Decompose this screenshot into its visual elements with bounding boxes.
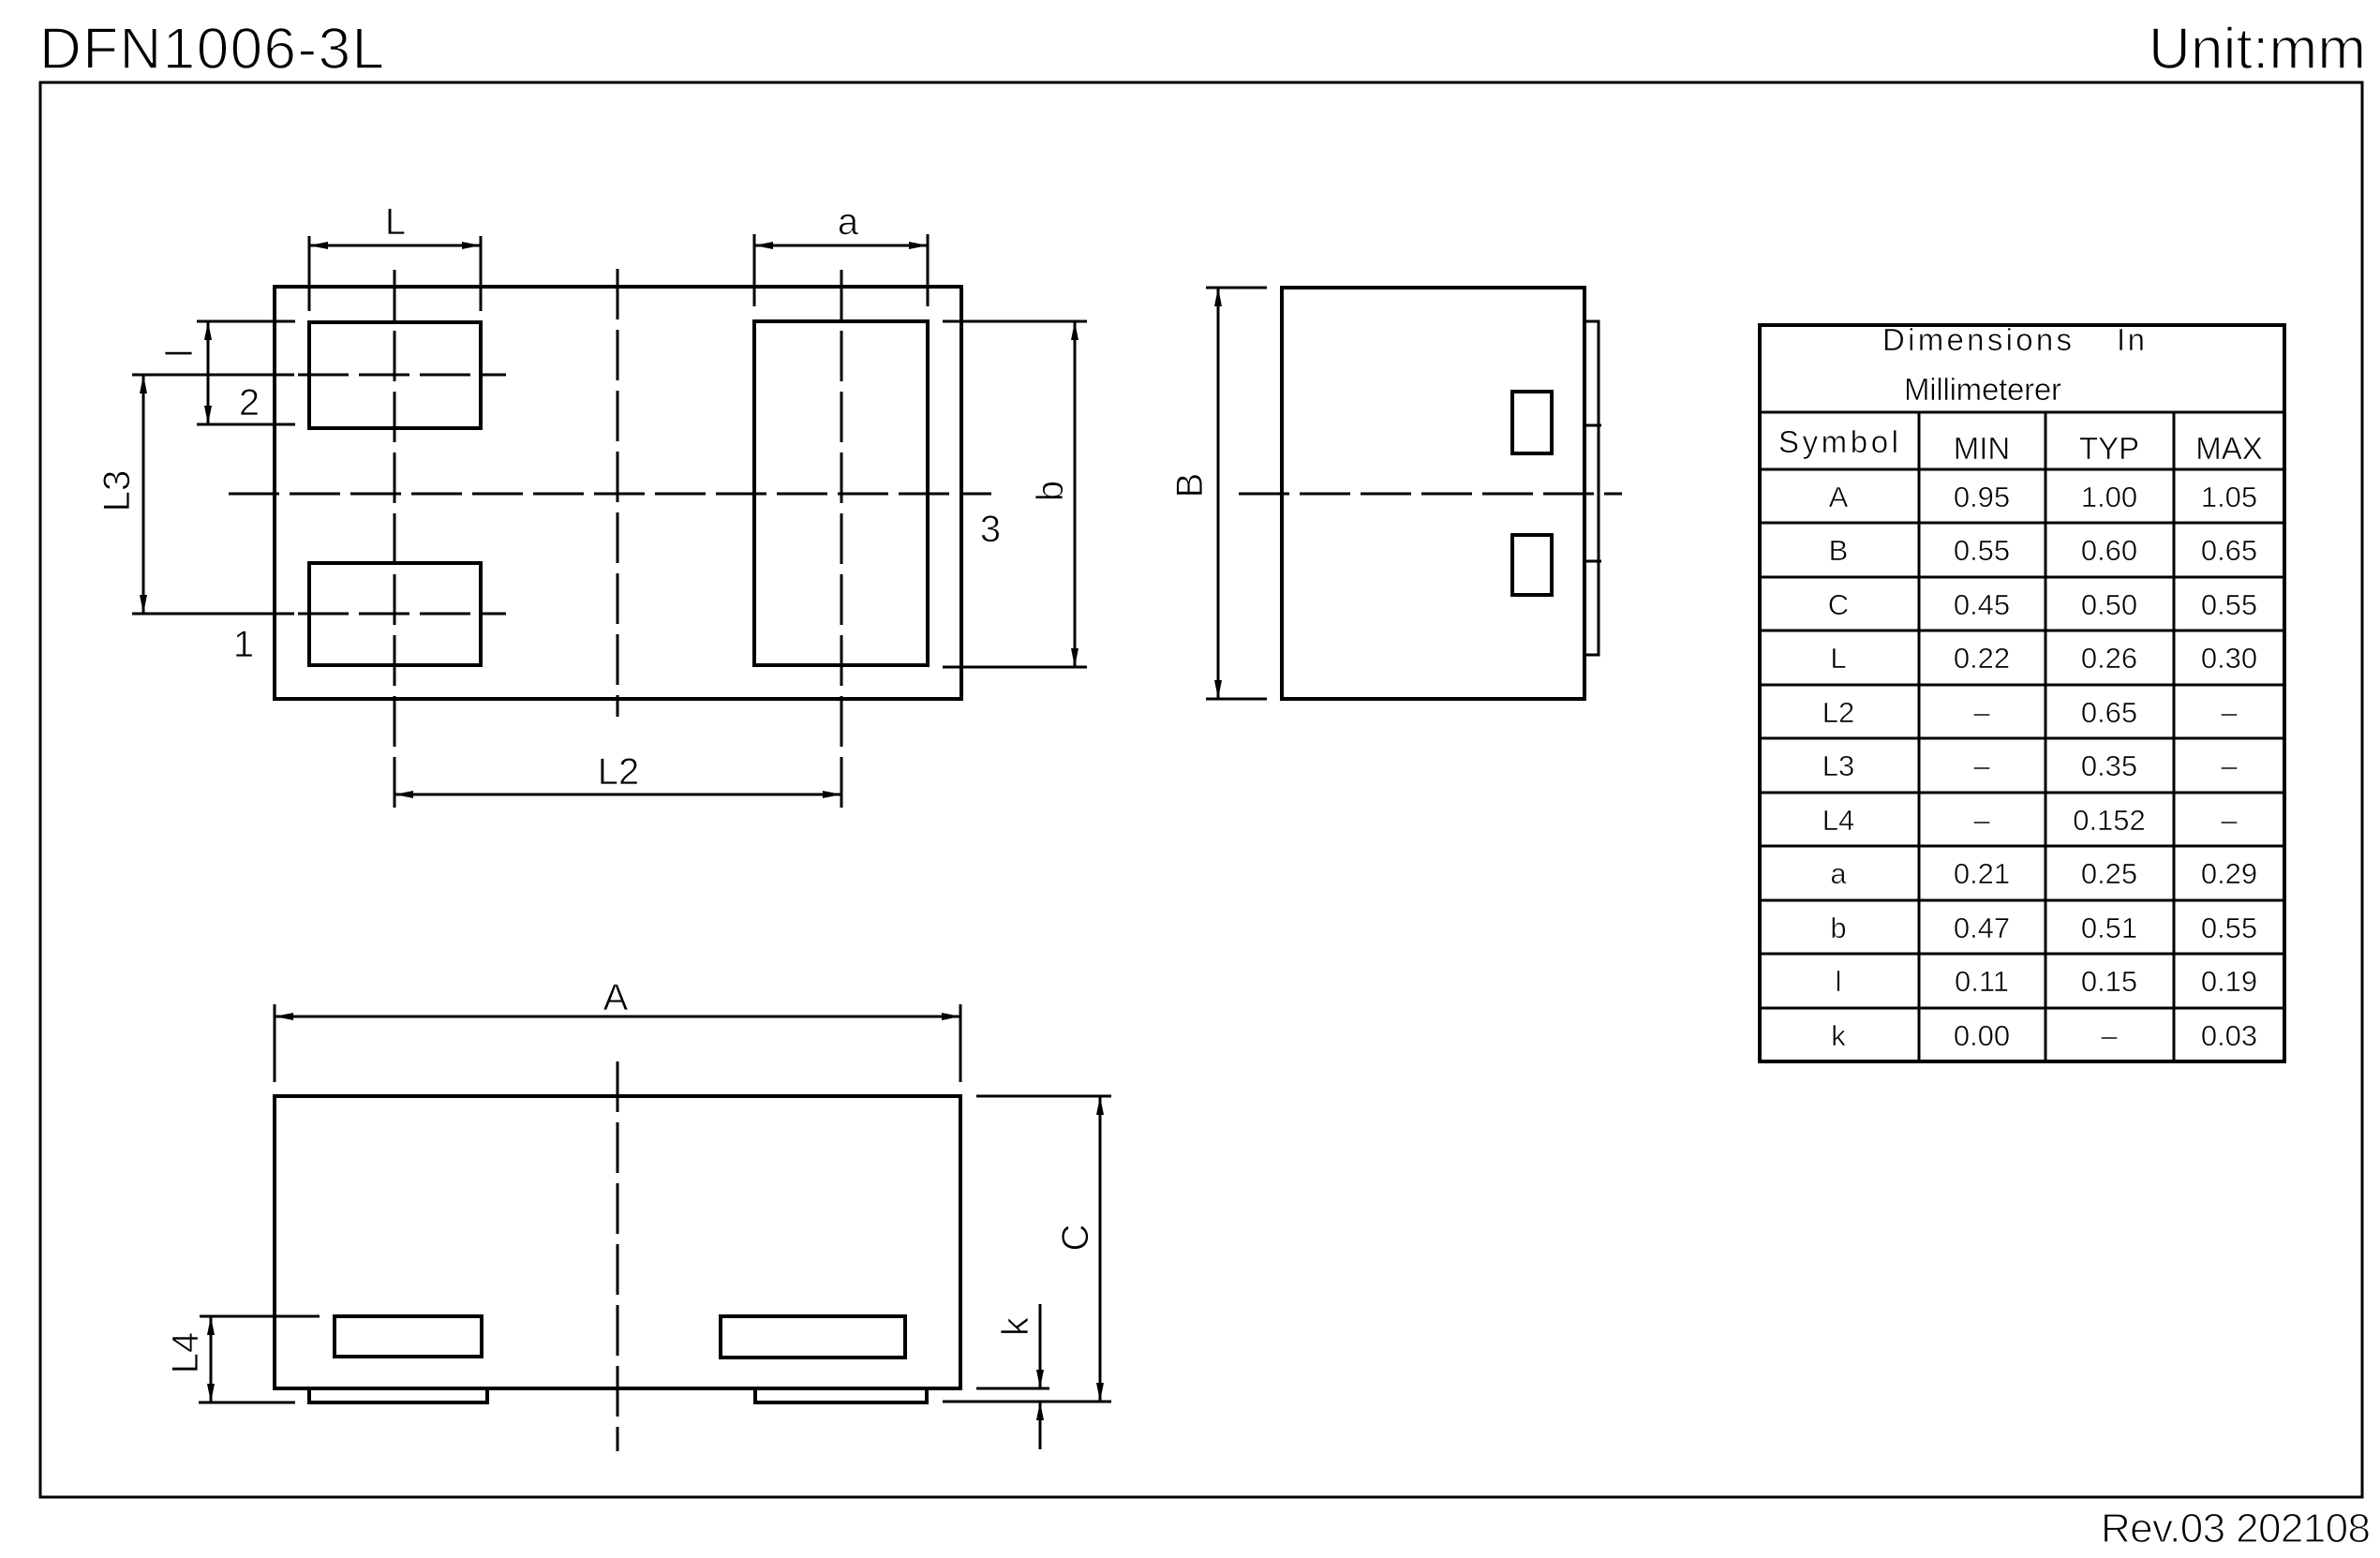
svg-text:0.55: 0.55 [1954,534,2010,567]
svg-text:A: A [1829,481,1849,513]
svg-text:0.00: 0.00 [1954,1019,2010,1052]
svg-text:B: B [1169,473,1211,498]
svg-text:Dimensions: Dimensions [1882,322,2072,357]
svg-text:0.30: 0.30 [2201,642,2257,675]
svg-text:0.45: 0.45 [1954,588,2010,621]
svg-text:L3: L3 [97,470,138,512]
svg-text:a: a [1830,857,1847,890]
svg-text:0.152: 0.152 [2073,804,2146,837]
svg-text:L4: L4 [1822,804,1854,837]
svg-text:L2: L2 [1822,696,1854,729]
svg-text:k: k [995,1316,1036,1336]
svg-text:C: C [1828,588,1849,621]
svg-text:2: 2 [239,382,260,423]
svg-text:L: L [385,201,406,243]
svg-text:C: C [1055,1224,1096,1252]
svg-text:1: 1 [233,624,254,665]
svg-text:0.51: 0.51 [2081,912,2137,944]
svg-text:k: k [1831,1019,1846,1052]
svg-text:L4: L4 [165,1332,206,1374]
svg-text:L: L [1830,642,1846,675]
svg-text:3: 3 [980,509,1001,550]
svg-text:1.00: 1.00 [2081,481,2137,513]
svg-text:0.65: 0.65 [2081,696,2137,729]
svg-text:0.22: 0.22 [1954,642,2010,675]
svg-text:0.25: 0.25 [2081,857,2137,890]
svg-text:0.11: 0.11 [1955,965,2009,998]
svg-text:MIN: MIN [1954,431,2011,466]
svg-text:–: – [2101,1019,2118,1052]
svg-text:0.65: 0.65 [2201,534,2257,567]
svg-text:b: b [1830,912,1846,944]
svg-text:l: l [1836,965,1842,998]
svg-text:–: – [2221,749,2238,782]
svg-text:Unit:mm: Unit:mm [2149,17,2366,82]
svg-text:b: b [1030,481,1071,501]
svg-text:0.21: 0.21 [1954,857,2010,890]
svg-text:Symbol: Symbol [1778,424,1898,459]
svg-text:0.35: 0.35 [2081,749,2137,782]
svg-text:TYP: TYP [2079,431,2139,466]
svg-text:0.29: 0.29 [2201,857,2257,890]
svg-text:0.26: 0.26 [2081,642,2137,675]
svg-text:In: In [2117,322,2145,357]
svg-text:0.47: 0.47 [1954,912,2010,944]
svg-text:MAX: MAX [2195,431,2263,466]
svg-text:A: A [603,977,629,1018]
svg-text:0.03: 0.03 [2201,1019,2257,1052]
svg-text:L3: L3 [1822,749,1854,782]
svg-text:1.05: 1.05 [2201,481,2257,513]
svg-text:–: – [1973,749,1990,782]
svg-text:B: B [1829,534,1849,567]
svg-text:Rev.03 202108: Rev.03 202108 [2101,1506,2371,1551]
svg-text:l: l [159,349,201,358]
svg-text:0.60: 0.60 [2081,534,2137,567]
svg-text:–: – [1973,696,1990,729]
svg-text:0.95: 0.95 [1954,481,2010,513]
svg-text:0.55: 0.55 [2201,912,2257,944]
svg-text:Millimeterer: Millimeterer [1904,372,2061,407]
svg-text:–: – [2221,804,2238,837]
svg-text:0.19: 0.19 [2201,965,2257,998]
svg-text:L2: L2 [598,751,640,793]
svg-text:–: – [2221,696,2238,729]
svg-text:0.15: 0.15 [2081,965,2137,998]
svg-text:–: – [1973,804,1990,837]
svg-text:a: a [838,201,859,243]
svg-text:0.50: 0.50 [2081,588,2137,621]
svg-text:0.55: 0.55 [2201,588,2257,621]
svg-text:DFN1006-3L: DFN1006-3L [39,17,384,82]
